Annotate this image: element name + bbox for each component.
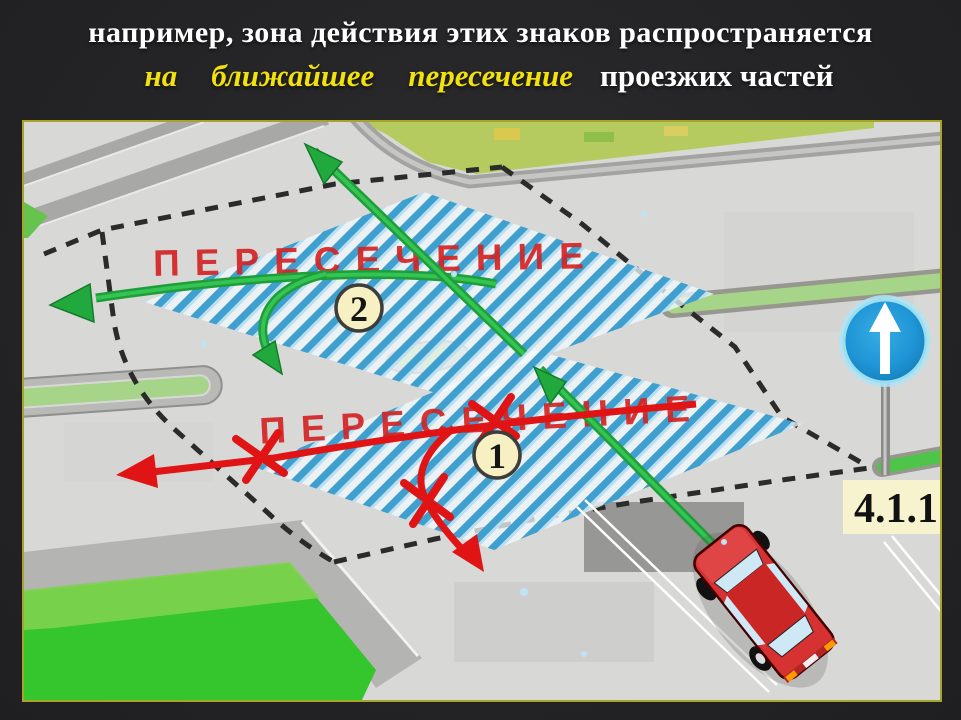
slide-title: например, зона действия этих знаков расп… xyxy=(0,16,961,94)
zone-1-number-badge: 1 xyxy=(474,432,520,478)
highlight-word: на xyxy=(144,58,177,93)
sign-median-strip xyxy=(882,454,940,467)
title-line-2-rest: проезжих частей xyxy=(600,58,833,93)
zone-2-number-badge: 2 xyxy=(336,285,382,331)
zone-1-number: 1 xyxy=(488,436,506,476)
title-line-2: наближайшеепересечениепроезжих частей xyxy=(0,58,961,94)
title-line-1: например, зона действия этих знаков расп… xyxy=(0,16,961,50)
zone-2-number: 2 xyxy=(350,289,368,329)
highlight-word: ближайшее xyxy=(211,58,374,93)
intersection-illustration: ПЕРЕСЕЧЕНИЕ ПЕРЕСЕЧЕНИЕ 2 xyxy=(24,122,940,700)
diagram-frame: ПЕРЕСЕЧЕНИЕ ПЕРЕСЕЧЕНИЕ 2 xyxy=(22,120,942,702)
sign-code-label: 4.1.1 xyxy=(854,486,938,532)
highlight-word: пересечение xyxy=(408,58,573,93)
